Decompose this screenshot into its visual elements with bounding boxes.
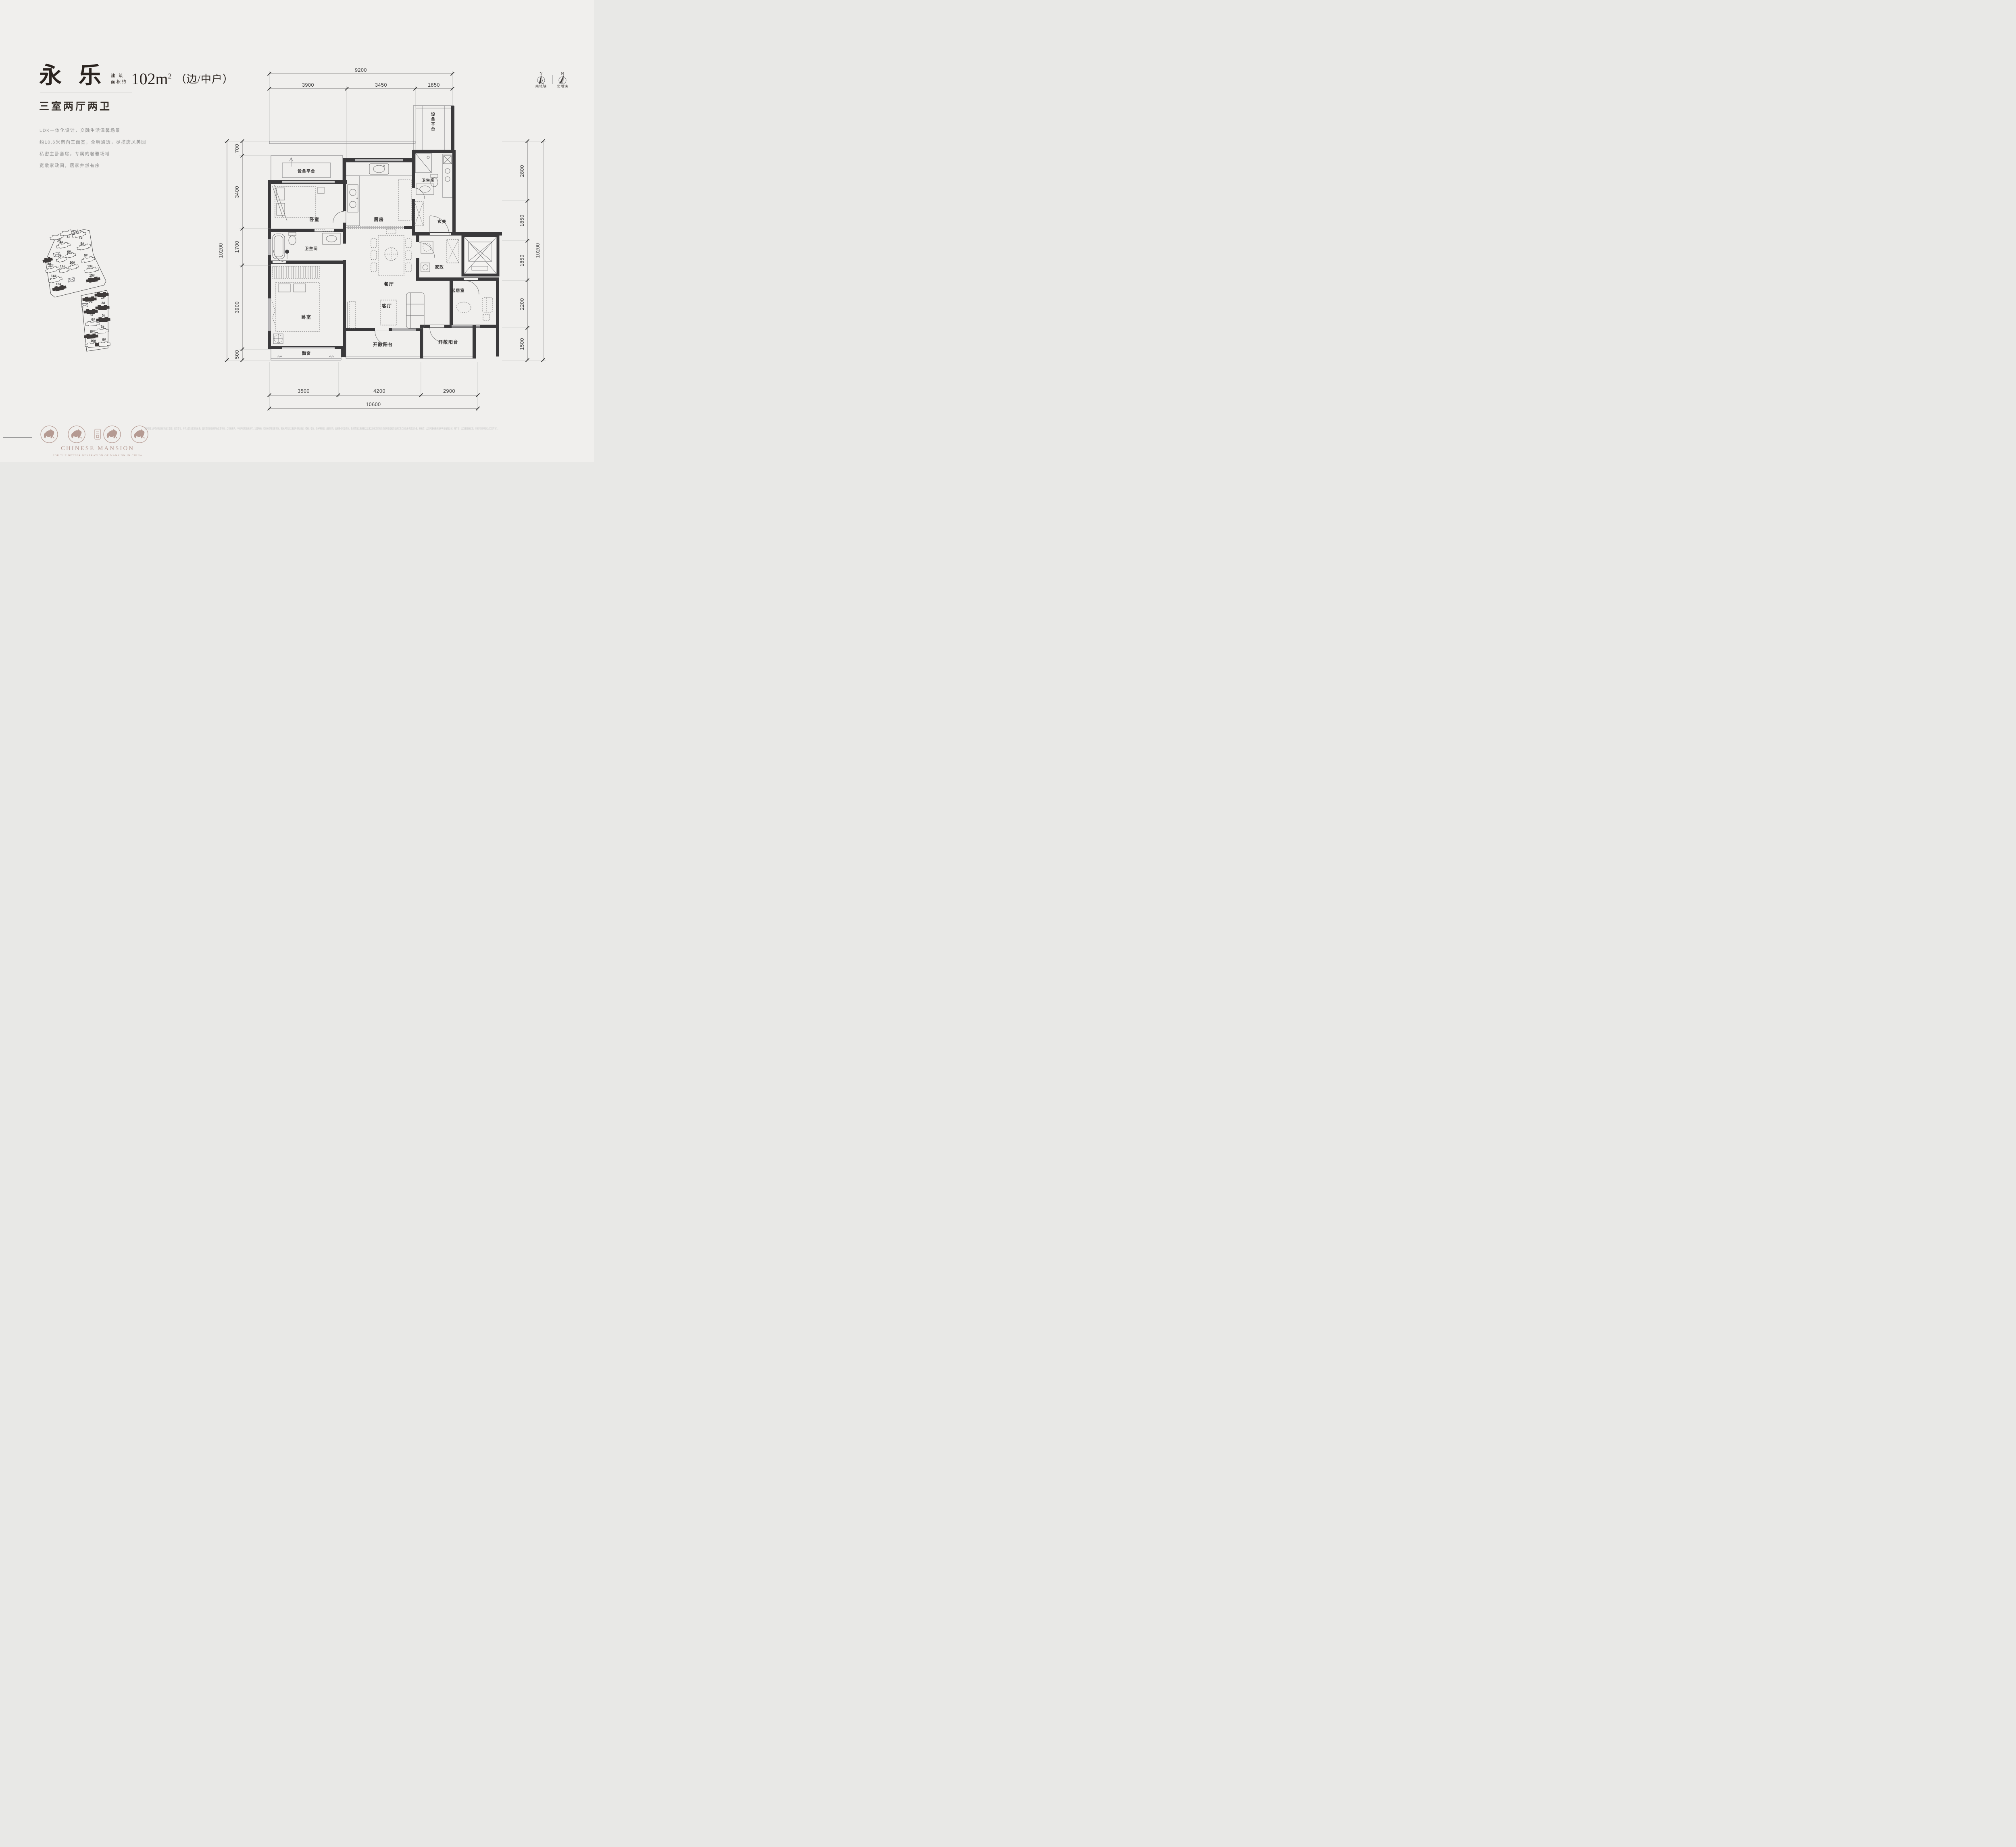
dim-label: 500 [234,350,240,359]
wall [451,106,454,152]
building-label: 10# [90,339,96,343]
north-plot-label: 北地块 [557,84,569,88]
entry-door-arc [430,216,449,235]
door-gap [430,233,451,235]
family-furniture [456,298,493,320]
wall-foyer-west [412,199,415,232]
sitemap: 3# 2# 1# 4# 5# 6# 7# 9# 8# 10# 11# 12# 1… [42,229,110,351]
compass-south-plot: N 南地块 [535,72,547,88]
dim-label: 3900 [234,301,240,313]
building-label: 16# [56,282,61,286]
bath1-fixtures [414,153,452,199]
room-label-foyer: 玄关 [437,219,446,224]
door-gap [375,328,389,331]
floorplan-sheet: 永 乐 建 筑 面积约 102m2 （边/中户） 三室两厅两卫 LDK一体化设计… [0,0,594,462]
kitchen-fixtures [346,162,412,226]
bath2-fixtures [273,232,340,259]
building-label: 6# [92,318,95,321]
building-label: 1# [79,236,83,240]
building-label: 1# [101,296,105,300]
dims-right: 2800 1850 1850 2200 1500 10200 [502,140,546,362]
dim-label: 9200 [355,67,367,73]
compass-north-plot: N 北地块 [557,72,569,88]
wall-laundry-west [416,258,419,277]
dim-label: 1850 [519,254,525,267]
building-label: 8# [90,330,94,334]
door-gap [430,325,444,327]
wall-balcony2-east [473,325,476,359]
floorplan: 设备平台 设备平台 [218,67,546,411]
bedroom1-furniture [273,185,344,223]
room-label-bedroom1: 卧室 [310,217,320,222]
dim-label: 4200 [373,388,385,394]
building-label: 9# [102,338,106,342]
dim-label: 3900 [302,82,314,88]
vent-arrow [289,158,293,167]
building-label: 4# [60,240,63,244]
room-label-balcony1: 开敞阳台 [373,342,393,347]
plan-canvas: N 南地块 N 北地块 3# 2# 1# 4# 5# 6# [0,0,594,462]
dim-label: 2800 [519,165,525,177]
brand-tagline: FOR THE BETTER GENERATION OF MANSION IN … [29,454,166,457]
dim-label: 1850 [428,82,440,88]
room-label-balcony2: 开敞阳台 [438,339,458,345]
dim-label: 1500 [519,338,525,350]
door-arc-family [465,281,479,294]
wall-balcony-divider [420,325,423,359]
building-label: 9# [84,254,88,257]
wall-east-upper [452,150,456,232]
door-gap [464,278,478,280]
room-label-family: 起居室 [451,288,465,293]
wall-mid [343,158,346,211]
room-label-dining: 餐厅 [384,281,394,287]
compass-needle-group [558,75,567,85]
dim-label: 10200 [218,243,224,258]
seal-icon [95,429,100,439]
building-label: 11# [60,265,65,268]
building-label: 2# [67,235,71,238]
dim-label: 1700 [234,241,240,253]
dim-label: 2200 [519,298,525,310]
room-label-equip-top: 设备平台 [430,112,435,131]
room-label-bath1: 卫生间 [422,178,435,183]
room-label-bedroom2: 卧室 [302,314,312,320]
footer-divider [3,437,32,438]
dim-label: 3400 [234,186,240,198]
dims-bottom: 3500 4200 2900 10600 [268,362,480,411]
dim-label: 2900 [443,388,455,394]
room-label-kitchen: 厨房 [374,217,384,222]
eave-lines [269,141,415,144]
building-label: 15# [89,274,95,277]
wall-mid [343,260,346,349]
dim-label: 10600 [366,402,381,407]
wall-laundry-south [416,277,499,281]
dim-label: 1850 [519,215,525,227]
dims-left: 10200 700 3400 1700 3900 500 [218,140,271,362]
building-label: 2# [89,300,93,304]
room-label-equip-left: 设备平台 [298,169,315,174]
building-label: 7# [101,325,104,329]
building-label: 4# [90,313,94,317]
foyer-fixtures [414,202,423,226]
room-label-bay: 飘窗 [302,351,311,356]
building-label: 10# [69,261,75,265]
room-label-bath2: 卫生间 [305,246,318,251]
wall-bedroom1-south [268,229,346,232]
wall-corner-block [341,346,346,357]
wall-bath1-west [412,150,415,188]
wall-bath1-north [412,150,456,153]
building-label: 14# [51,274,56,278]
living-furniture [348,293,424,328]
building-label: 3# [102,301,105,305]
dims-top: 9200 3900 3450 1850 [268,67,454,158]
door-arc-laundry [419,243,435,258]
legal-disclaimer: 本户型图为户型的标准层平面示意图，仅供参考，不作为要约或销售承诺。具体选购房源因… [144,427,569,431]
wall-living-family [450,281,453,328]
south-plot-label: 南地块 [535,84,547,88]
brand-medallions [41,426,148,443]
building-label: 13# [87,265,93,268]
dim-label: 3500 [298,388,310,394]
bedroom2-furniture [273,266,319,344]
wall-laundry-west [416,236,419,242]
building-label: 5# [81,242,84,246]
building-highlight-part [95,343,99,346]
dim-label: 3450 [375,82,387,88]
curtain [272,300,276,327]
room-label-living: 客厅 [382,303,392,309]
brand-name: CHINESE MANSION [37,445,158,452]
wall-east-lower [496,277,499,356]
dining-furniture [371,229,411,276]
wall-mid [343,231,346,244]
building-label: 5# [102,314,106,317]
dim-label: 700 [234,144,240,153]
room-label-laundry: 家政 [435,265,444,270]
dim-label: 10200 [535,243,541,258]
building-label: 6# [67,250,71,254]
building-label: 12# [48,264,54,267]
equip-platform-left [271,156,343,181]
